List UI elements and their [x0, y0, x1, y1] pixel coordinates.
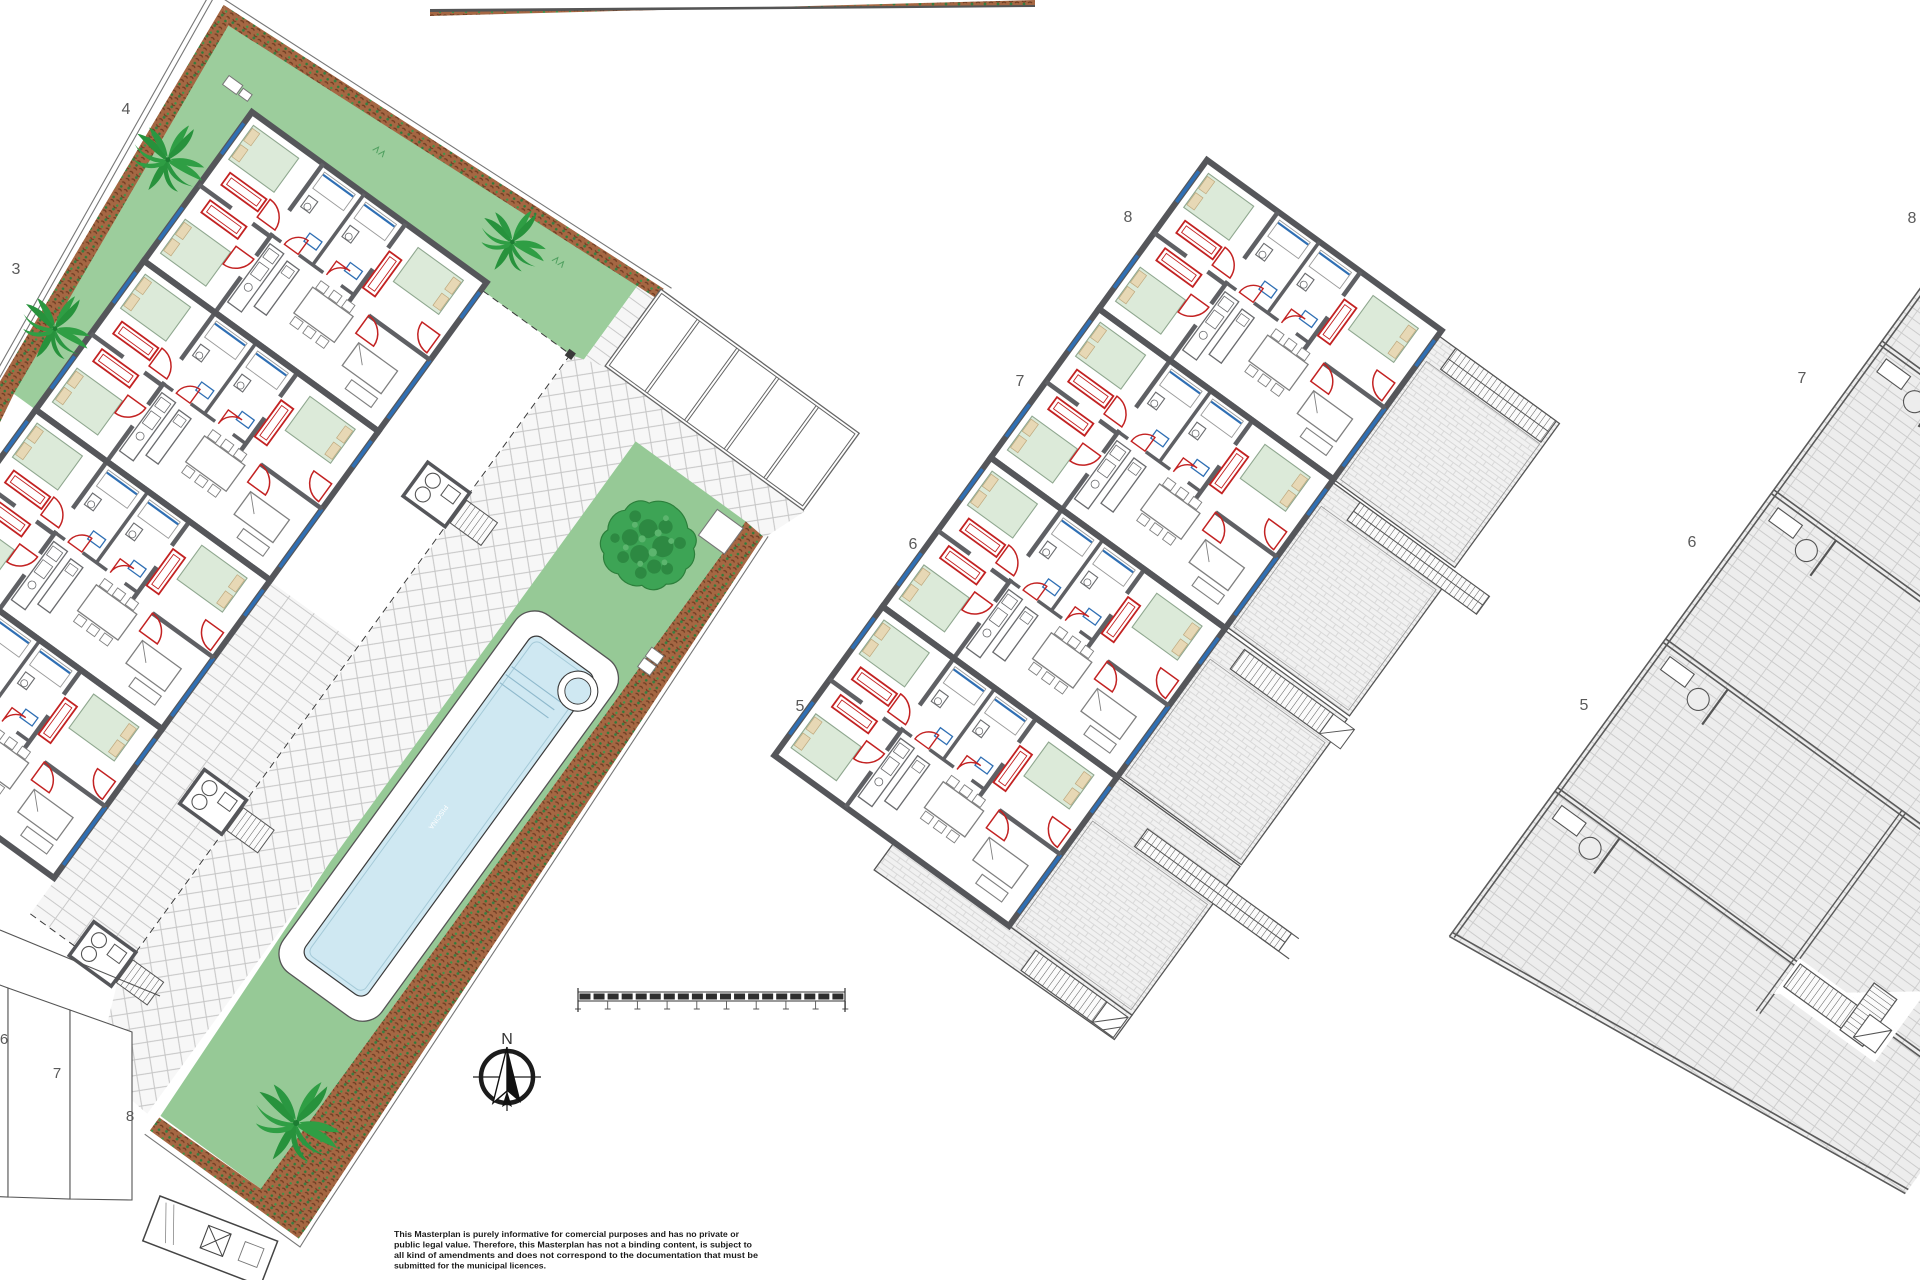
svg-text:submitted for the municipal li: submitted for the municipal licences. — [394, 1261, 546, 1271]
svg-text:all kind of amendments and doe: all kind of amendments and does not corr… — [394, 1250, 758, 1260]
svg-text:7: 7 — [1016, 373, 1025, 390]
svg-text:4: 4 — [122, 101, 131, 118]
svg-text:7: 7 — [1798, 370, 1807, 387]
svg-text:public legal value. Therefore,: public legal value. Therefore, this Mast… — [394, 1240, 752, 1250]
svg-text:6: 6 — [909, 536, 918, 553]
svg-text:8: 8 — [1124, 209, 1133, 226]
svg-text:8: 8 — [126, 1108, 134, 1125]
svg-text:This Masterplan is purely info: This Masterplan is purely informative fo… — [394, 1229, 740, 1239]
svg-text:6: 6 — [1688, 534, 1697, 551]
svg-text:8: 8 — [1908, 210, 1917, 227]
svg-text:7: 7 — [53, 1065, 61, 1082]
svg-text:3: 3 — [12, 261, 21, 278]
svg-text:6: 6 — [0, 1031, 8, 1048]
svg-text:5: 5 — [796, 698, 805, 715]
svg-text:5: 5 — [1580, 697, 1589, 714]
svg-text:N: N — [501, 1031, 513, 1048]
